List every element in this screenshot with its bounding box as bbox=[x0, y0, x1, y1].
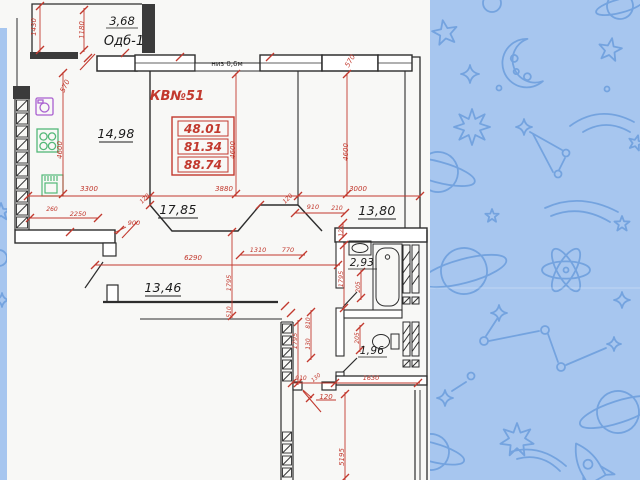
dimension-label: 130 bbox=[305, 338, 312, 350]
dimension-label: 910 bbox=[295, 375, 307, 382]
dimension-label: 810 bbox=[305, 317, 312, 329]
dimension-label: 120 bbox=[338, 225, 345, 237]
room-area-living: 17,85 bbox=[159, 202, 196, 217]
dimension-label: 910 bbox=[307, 203, 319, 211]
room-area-hallway: 13,46 bbox=[144, 280, 181, 295]
presentation-slide: 1430118057057046004600460033003880300012… bbox=[0, 0, 640, 480]
dimension-label: 1180 bbox=[78, 21, 86, 39]
background-seam bbox=[428, 287, 640, 289]
balcony-name-label: Одб-1 bbox=[104, 34, 144, 49]
dimension-label: 770 bbox=[282, 246, 294, 254]
dimension-label: 1630 bbox=[363, 374, 380, 382]
dimension-label: 5195 bbox=[338, 448, 346, 466]
dimension-label: 210 bbox=[331, 205, 343, 212]
summary-value: 48.01 bbox=[183, 122, 222, 136]
dimension-label: 900 bbox=[128, 219, 140, 227]
dimension-label: 1310 bbox=[250, 246, 267, 254]
dimension-label: 3880 bbox=[215, 185, 233, 193]
dimension-label: 205 bbox=[354, 332, 361, 344]
summary-value: 88.74 bbox=[184, 158, 222, 172]
room-area-wc: 1,96 bbox=[360, 345, 385, 357]
dimension-label: 3000 bbox=[349, 185, 367, 193]
dimension-label: 205 bbox=[355, 281, 362, 293]
apartment-number: КВ№51 bbox=[150, 89, 204, 104]
room-area-bedroom: 13,80 bbox=[358, 203, 395, 218]
dimension-label: 2250 bbox=[70, 210, 87, 218]
dimension-label: 510 bbox=[226, 306, 233, 318]
summary-value: 81.34 bbox=[184, 140, 222, 154]
dimension-label: 260 bbox=[46, 206, 58, 213]
dimension-label: 120 bbox=[319, 393, 333, 401]
window-note: низ 0,6м bbox=[211, 60, 243, 68]
dimension-label: 1795 bbox=[337, 271, 345, 288]
dimension-label: 6290 bbox=[184, 254, 202, 262]
dimension-label: 4600 bbox=[56, 141, 64, 159]
balcony-area-label: 3,68 bbox=[109, 14, 135, 28]
dimension-label: 1430 bbox=[30, 18, 38, 36]
dimension-label: 4600 bbox=[342, 143, 350, 161]
dimension-label: 4600 bbox=[229, 141, 237, 159]
floor-plan-scene: 1430118057057046004600460033003880300012… bbox=[0, 0, 640, 480]
dimension-label: 3300 bbox=[80, 185, 98, 193]
room-area-kitchen: 14,98 bbox=[97, 126, 134, 141]
dimension-label: 1795 bbox=[225, 275, 233, 292]
room-area-bathroom: 2,93 bbox=[350, 257, 375, 269]
dimension-label: 1795 bbox=[291, 333, 299, 350]
